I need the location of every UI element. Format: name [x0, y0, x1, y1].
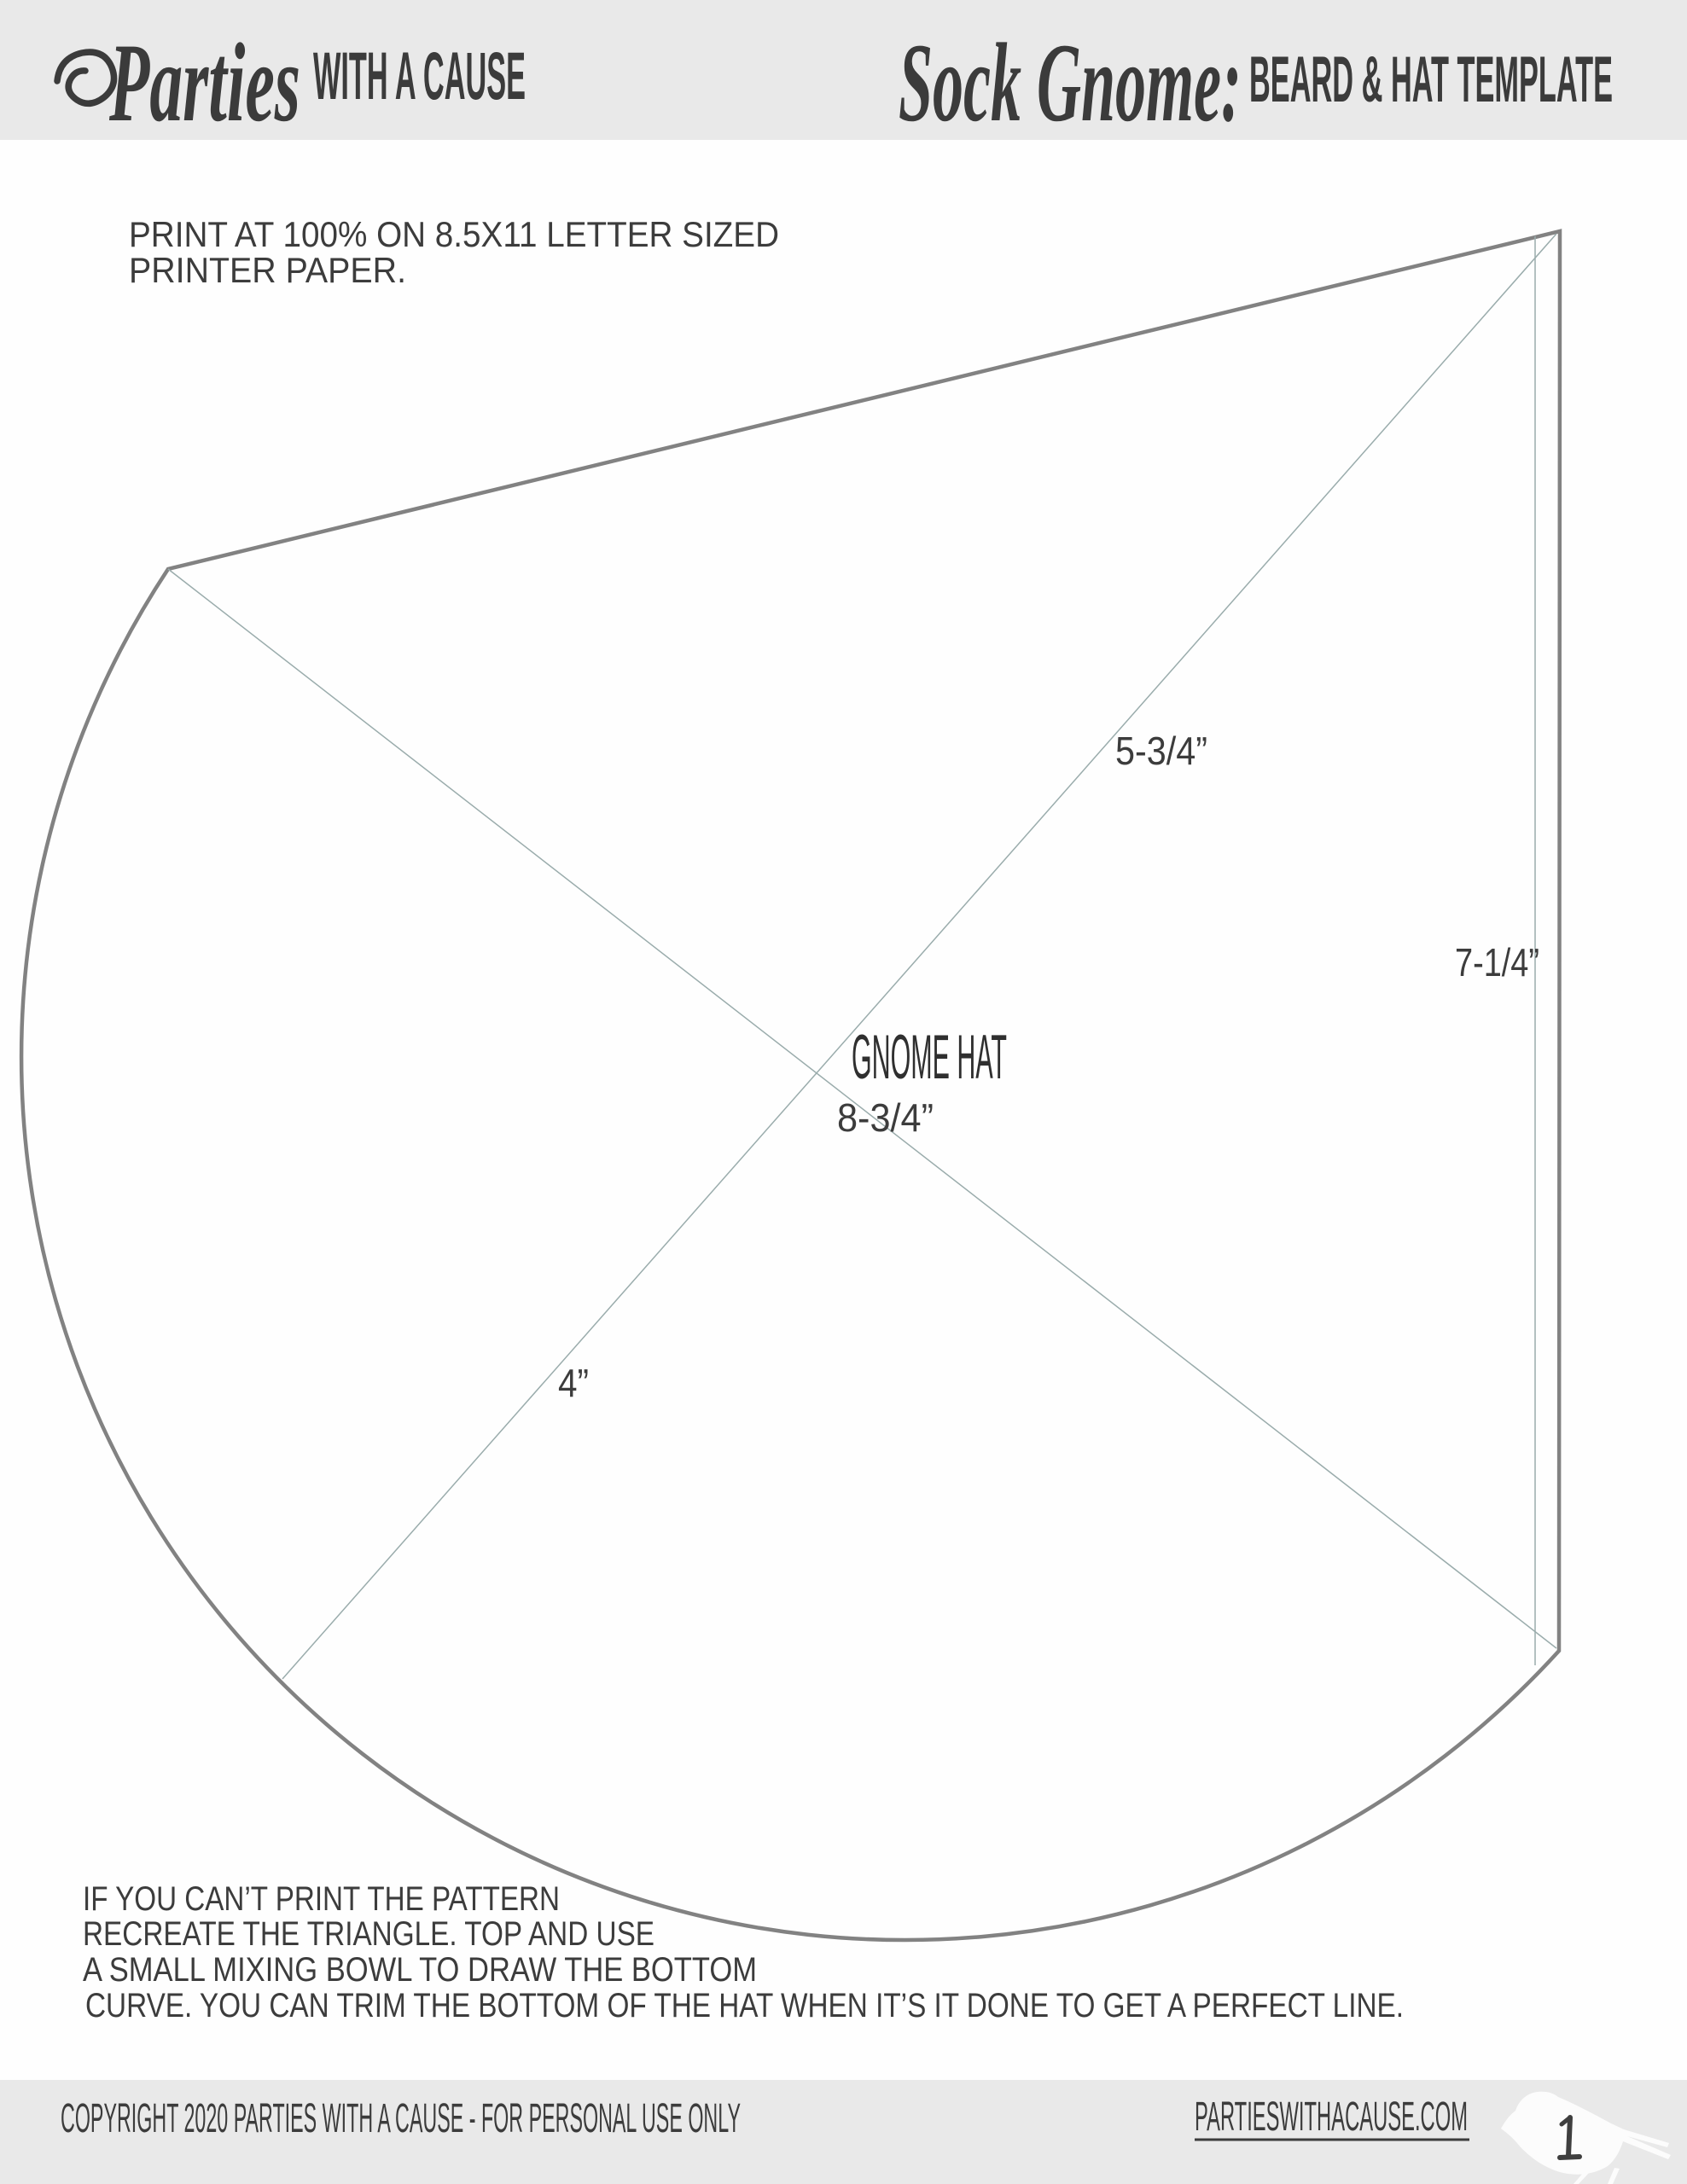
svg-text:Parties: Parties [108, 20, 300, 145]
svg-text:IF YOU CAN’T PRINT THE PATTERN: IF YOU CAN’T PRINT THE PATTERN [83, 1880, 560, 1918]
svg-text:GNOME HAT: GNOME HAT [852, 1023, 1007, 1092]
svg-text:7-1/4”: 7-1/4” [1455, 940, 1539, 985]
svg-text:A SMALL MIXING BOWL TO DRAW TH: A SMALL MIXING BOWL TO DRAW THE BOTTOM [83, 1951, 757, 1989]
svg-text:Sock Gnome:: Sock Gnome: [899, 20, 1242, 145]
svg-text:5-3/4”: 5-3/4” [1115, 729, 1207, 773]
svg-text:PARTIESWITHACAUSE.COM: PARTIESWITHACAUSE.COM [1195, 2094, 1468, 2140]
svg-text:8-3/4”: 8-3/4” [837, 1095, 934, 1140]
svg-text:4”: 4” [558, 1361, 589, 1405]
svg-text:PRINTER PAPER.: PRINTER PAPER. [129, 250, 406, 290]
svg-text:CURVE. YOU CAN TRIM THE BOTTOM: CURVE. YOU CAN TRIM THE BOTTOM OF THE HA… [85, 1987, 1404, 2024]
svg-text:RECREATE THE TRIANGLE. TOP AND: RECREATE THE TRIANGLE. TOP AND USE [83, 1915, 654, 1953]
svg-text:WITH A CAUSE: WITH A CAUSE [313, 38, 526, 113]
svg-text:PRINT AT 100% ON 8.5X11 LETTER: PRINT AT 100% ON 8.5X11 LETTER SIZED [129, 214, 779, 254]
svg-text:COPYRIGHT 2020 PARTIES WITH A: COPYRIGHT 2020 PARTIES WITH A CAUSE - FO… [61, 2096, 741, 2141]
svg-text:BEARD & HAT TEMPLATE: BEARD & HAT TEMPLATE [1249, 44, 1613, 116]
